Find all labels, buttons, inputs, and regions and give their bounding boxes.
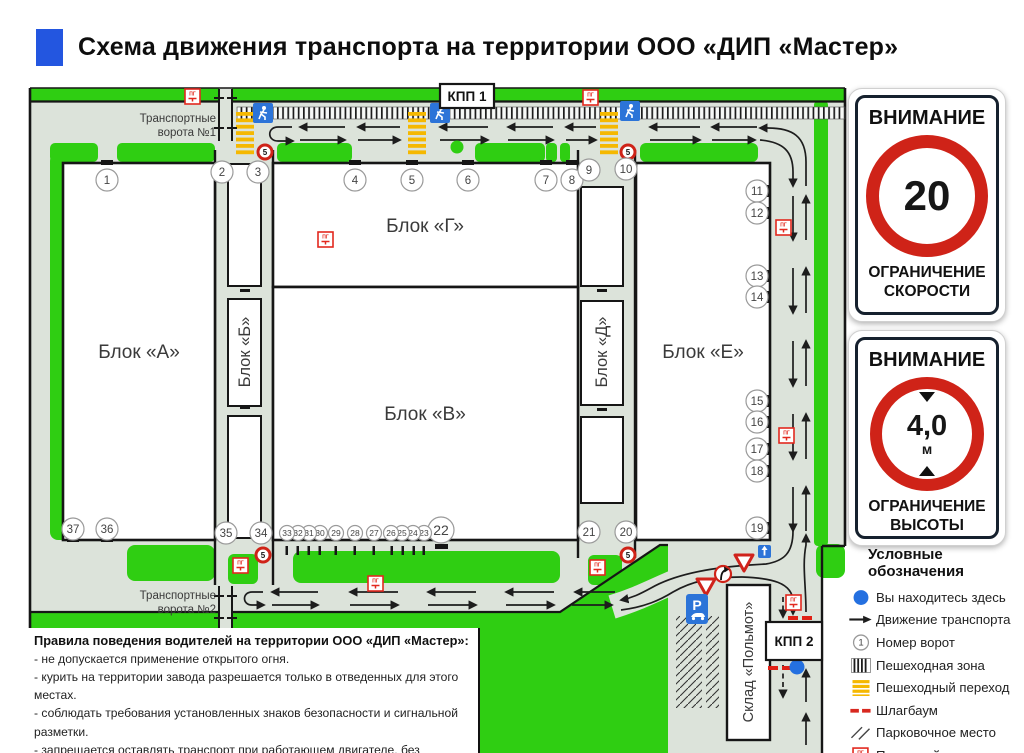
height-limit-unit: м (922, 441, 932, 457)
you-are-here-dot (790, 660, 805, 675)
fire-hydrant-icon: ПГ (590, 560, 605, 575)
height-sign-caption: ОГРАНИЧЕНИЕ ВЫСОТЫ (862, 498, 992, 536)
legend-item-you-are-here: Вы находитесь здесь (846, 586, 1024, 609)
page: Схема движения транспорта на территории … (0, 0, 1024, 753)
height-sign-attention: ВНИМАНИЕ (869, 349, 986, 372)
legend-item-traffic-arrow: Движение транспорта (846, 609, 1024, 632)
svg-text:ПГ: ПГ (322, 235, 329, 241)
gate-door-tick (597, 408, 607, 411)
warehouse-label: Склад «Польмот» (741, 602, 757, 723)
you-are-here-icon (846, 589, 876, 606)
gate-number-6: 6 (457, 169, 479, 191)
svg-text:6: 6 (465, 175, 471, 187)
legend-item-label: Вы находитесь здесь (876, 590, 1006, 605)
gate-number-9: 9 (578, 159, 600, 181)
svg-text:36: 36 (101, 524, 114, 536)
legend-item-label: Парковочное место (876, 725, 996, 740)
gate-number-4: 4 (344, 169, 366, 191)
rule-line: - курить на территории завода разрешаетс… (34, 668, 470, 704)
svg-text:ПГ: ПГ (594, 563, 601, 569)
svg-text:35: 35 (220, 528, 233, 540)
height-limit-sign: ВНИМАНИЕ 4,0 м ОГРАНИЧЕНИЕ ВЫСОТЫ (848, 330, 1006, 546)
detour-sign (715, 566, 731, 582)
speed-sign-caption: ОГРАНИЧЕНИЕ СКОРОСТИ (862, 264, 992, 302)
height-limit-value: 4,0 (907, 413, 947, 441)
gate1-label: Транспортные (140, 113, 216, 125)
gate-door-tick (406, 160, 418, 165)
gate-number-33: 33 (280, 526, 295, 541)
legend-title: Условные обозначения (868, 546, 1024, 580)
speed-sign-attention: ВНИМАНИЕ (869, 107, 986, 130)
svg-text:20: 20 (620, 527, 633, 539)
gate-door-tick (286, 546, 289, 555)
fire-hydrant-icon: ПГ (368, 576, 383, 591)
gate-door-tick (566, 160, 578, 165)
legend-item-fire-hydrant: ПГПожарный гидрант (846, 744, 1024, 753)
gate-door-tick (540, 160, 552, 165)
speed-limit-5-sign: 5 (256, 548, 270, 562)
svg-text:5: 5 (261, 551, 266, 560)
block-d-seg (581, 187, 623, 286)
svg-text:22: 22 (433, 522, 449, 538)
gate-door-tick (335, 546, 338, 555)
svg-text:11: 11 (751, 186, 763, 198)
gate-number-13: 13 (746, 265, 768, 287)
svg-text:4: 4 (352, 175, 359, 187)
legend-item-label: Пожарный гидрант (876, 748, 992, 753)
fire-hydrant-icon: ПГ (583, 90, 598, 105)
block-b-seg (228, 416, 261, 538)
rule-line: - не допускается применение открытого ог… (34, 650, 470, 668)
speed-limit-circle: 20 (866, 135, 988, 257)
gate-door-tick (349, 160, 361, 165)
gate-number-16: 16 (746, 411, 768, 433)
pedestrian-crossing-sign (620, 101, 640, 121)
gate-door-tick (391, 546, 394, 555)
svg-text:37: 37 (67, 524, 80, 536)
gate-door-tick (413, 546, 416, 555)
traffic-arrow-icon (846, 611, 876, 628)
svg-text:8: 8 (569, 175, 575, 187)
speed-limit-sign: ВНИМАНИЕ 20 ОГРАНИЧЕНИЕ СКОРОСТИ (848, 88, 1006, 322)
svg-text:9: 9 (586, 165, 592, 177)
gate-door-tick (373, 546, 376, 555)
gate-number-29: 29 (329, 526, 344, 541)
svg-text:7: 7 (543, 175, 549, 187)
svg-text:34: 34 (255, 528, 268, 540)
svg-text:21: 21 (583, 527, 596, 539)
gate-number-7: 7 (535, 169, 557, 191)
gate-number-17: 17 (746, 438, 768, 460)
svg-text:1: 1 (104, 175, 110, 187)
gate-number-22: 22 (428, 517, 454, 543)
fire-hydrant-icon: ПГ (846, 747, 876, 753)
gate2-label: Транспортные (140, 590, 216, 602)
svg-text:28: 28 (350, 528, 360, 538)
svg-text:3: 3 (255, 167, 261, 179)
svg-text:5: 5 (626, 148, 631, 157)
svg-text:10: 10 (620, 164, 633, 176)
legend-item-pedestrian-zone: Пешеходная зона (846, 654, 1024, 677)
fire-hydrant-icon: ПГ (318, 232, 333, 247)
driver-rules: Правила поведения водителей на территори… (28, 628, 480, 753)
gate-number-19: 19 (746, 517, 768, 539)
svg-text:ПГ: ПГ (587, 93, 594, 99)
gate-number-28: 28 (348, 526, 363, 541)
gate-number-34: 34 (250, 522, 272, 544)
gate-door-tick (462, 160, 474, 165)
legend-item-gate-number: 1Номер ворот (846, 631, 1024, 654)
gate-door-tick (101, 160, 113, 165)
rule-line: - соблюдать требования установленных зна… (34, 704, 470, 740)
fire-hydrant-icon: ПГ (786, 595, 801, 610)
gate-door-tick (240, 289, 250, 292)
svg-text:5: 5 (626, 551, 631, 560)
rules-title: Правила поведения водителей на территори… (34, 633, 470, 648)
kpp1-label: КПП 1 (448, 89, 487, 104)
block-a-label: Блок «А» (98, 342, 180, 363)
gate-number-icon: 1 (846, 634, 876, 651)
gate-number-2: 2 (211, 161, 233, 183)
svg-text:14: 14 (751, 292, 764, 304)
gate-number-20: 20 (615, 521, 637, 543)
gate-door-tick (597, 289, 607, 292)
gate-number-27: 27 (367, 526, 382, 541)
kpp2-label: КПП 2 (775, 634, 814, 649)
speed-limit-5-sign: 5 (621, 548, 635, 562)
pedestrian-crossing-sign (253, 103, 273, 123)
legend-item-barrier: Шлагбаум (846, 699, 1024, 722)
svg-text:5: 5 (263, 148, 268, 157)
gate2-label2: ворота №2 (158, 604, 216, 616)
parking-sign-letter: P (692, 597, 701, 613)
gate-number-21: 21 (578, 521, 600, 543)
svg-text:12: 12 (751, 208, 764, 220)
block-v-label: Блок «В» (384, 404, 466, 425)
parking-spot-icon (846, 724, 876, 741)
parking-area (676, 616, 719, 708)
svg-text:16: 16 (751, 417, 764, 429)
legend-item-label: Движение транспорта (876, 612, 1010, 627)
svg-text:19: 19 (751, 523, 764, 535)
fire-hydrant-icon: ПГ (185, 89, 200, 104)
block-d-seg (581, 417, 623, 503)
svg-text:ПГ: ПГ (780, 223, 787, 229)
barrier-icon (846, 702, 876, 719)
svg-text:1: 1 (858, 638, 863, 649)
svg-text:18: 18 (751, 466, 764, 478)
legend-item-label: Пешеходная зона (876, 658, 985, 673)
block-b-label: Блок «Б» (236, 317, 254, 388)
gate-number-12: 12 (746, 202, 768, 224)
gate-door-tick (319, 546, 322, 555)
gate-door-tick (297, 546, 300, 555)
gate-door-tick (402, 546, 405, 555)
svg-text:15: 15 (751, 396, 764, 408)
gate-number-11: 11 (746, 180, 768, 202)
svg-text:ПГ: ПГ (189, 92, 196, 98)
legend-item-pedestrian-crossing: Пешеходный переход (846, 676, 1024, 699)
arrow-up-icon (919, 466, 935, 476)
gate-number-26: 26 (384, 526, 399, 541)
gate-door-tick (354, 546, 357, 555)
pedestrian-zone-icon (846, 657, 876, 674)
arrow-down-icon (919, 392, 935, 402)
fire-hydrant-icon: ПГ (233, 558, 248, 573)
green-dot (451, 141, 464, 154)
block-d-label: Блок «Д» (593, 317, 611, 388)
svg-text:26: 26 (386, 528, 396, 538)
gate-door-tick (435, 544, 448, 549)
speed-limit-5-sign: 5 (258, 145, 272, 159)
gate-number-14: 14 (746, 286, 768, 308)
gate-number-3: 3 (247, 161, 269, 183)
svg-text:ПГ: ПГ (237, 561, 244, 567)
gate-door-tick (308, 546, 311, 555)
block-g-label: Блок «Г» (386, 216, 464, 237)
height-limit-circle: 4,0 м (870, 377, 984, 491)
gate-door-tick (423, 546, 426, 555)
fire-hydrant-icon: ПГ (779, 428, 794, 443)
svg-text:ПГ: ПГ (783, 431, 790, 437)
gate-number-37: 37 (62, 518, 84, 540)
svg-text:13: 13 (751, 271, 764, 283)
gate-number-10: 10 (615, 158, 637, 180)
speed-limit-value: 20 (904, 172, 951, 220)
svg-text:17: 17 (751, 444, 764, 456)
gate-number-35: 35 (215, 522, 237, 544)
legend-item-label: Пешеходный переход (876, 680, 1009, 695)
pedestrian-zone-strip (237, 107, 845, 119)
svg-text:ПГ: ПГ (790, 598, 797, 604)
rule-line: - запрещается оставлять транспорт при ра… (34, 741, 470, 753)
pedestrian-crossing-icon (846, 679, 876, 696)
svg-text:ПГ: ПГ (372, 579, 379, 585)
svg-text:33: 33 (282, 528, 292, 538)
block-e-label: Блок «Е» (662, 342, 744, 363)
legend-item-parking-spot: Парковочное место (846, 722, 1024, 745)
gate1-label2: ворота №1 (158, 127, 216, 139)
svg-text:2: 2 (219, 167, 225, 179)
gate-number-18: 18 (746, 460, 768, 482)
svg-text:27: 27 (369, 528, 379, 538)
gate-number-1: 1 (96, 169, 118, 191)
svg-text:29: 29 (331, 528, 341, 538)
legend-item-label: Шлагбаум (876, 703, 938, 718)
gate-number-36: 36 (96, 518, 118, 540)
legend-item-label: Номер ворот (876, 635, 955, 650)
gate-door-tick (240, 406, 250, 409)
svg-text:5: 5 (409, 175, 415, 187)
gate-number-15: 15 (746, 390, 768, 412)
speed-limit-5-sign: 5 (621, 145, 635, 159)
legend: Условные обозначения Вы находитесь здесь… (846, 546, 1024, 753)
fire-hydrant-icon: ПГ (776, 220, 791, 235)
gate-number-5: 5 (401, 169, 423, 191)
